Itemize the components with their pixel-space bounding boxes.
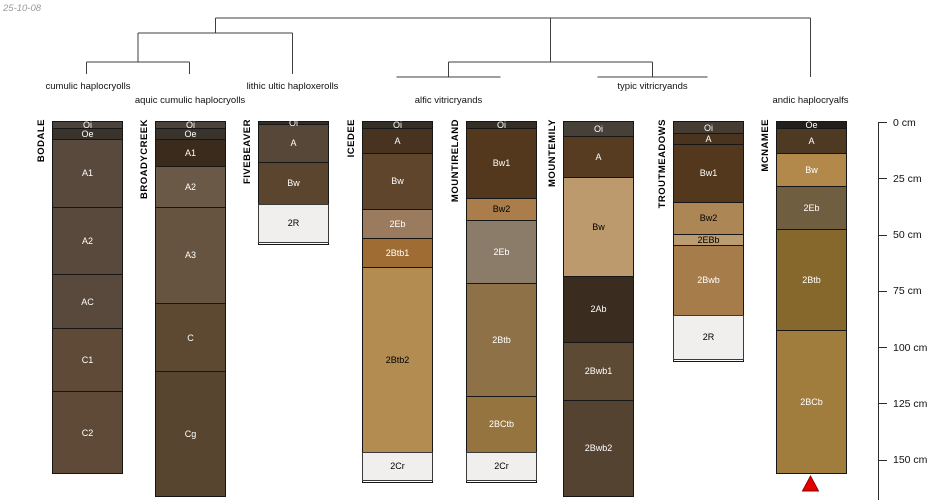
- horizon-bodale-oe: Oe: [53, 129, 122, 140]
- horizon-mcnamee-oe: Oe: [777, 122, 846, 129]
- horizon-broadycreek-a1: A1: [156, 140, 225, 167]
- depth-tick: [879, 347, 887, 348]
- horizon-mountemily-2bwb2: 2Bwb2: [564, 401, 633, 496]
- depth-tick-label: 0 cm: [893, 117, 916, 129]
- horizon-icedee-2cr: 2Cr: [362, 452, 433, 481]
- horizon-troutmeadows-oi: Oi: [674, 122, 743, 134]
- horizon-label: Oi: [497, 121, 506, 129]
- horizon-label: 2R: [703, 333, 715, 341]
- horizon-label: Bw1: [700, 169, 718, 177]
- horizon-mountemily-2bwb1: 2Bwb1: [564, 343, 633, 402]
- profile-column-icedee: OiABw2Eb2Btb12Btb22Cr: [362, 121, 433, 483]
- horizon-icedee-2eb: 2Eb: [363, 210, 432, 239]
- profile-column-broadycreek: OiOeA1A2A3CCg: [155, 121, 226, 497]
- horizon-label: Oi: [186, 121, 195, 129]
- profile-column-bodale: OiOeA1A2ACC1C2: [52, 121, 123, 474]
- horizon-mountemily-2ab: 2Ab: [564, 277, 633, 342]
- horizon-label: Oi: [594, 125, 603, 133]
- horizon-mountemily-bw: Bw: [564, 178, 633, 277]
- group-label: alfic vitricryands: [415, 95, 483, 106]
- horizon-label: A3: [185, 251, 196, 259]
- horizon-label: Bw: [592, 223, 605, 231]
- horizon-label: 2Btb: [492, 336, 511, 344]
- horizon-label: 2Ab: [590, 305, 606, 313]
- horizon-label: 2Eb: [389, 220, 405, 228]
- horizon-label: Oe: [805, 121, 817, 129]
- horizon-bodale-oi: Oi: [53, 122, 122, 129]
- profile-name-fivebeaver: FIVEBEAVER: [242, 119, 253, 184]
- depth-tick-label: 50 cm: [893, 229, 922, 241]
- horizon-broadycreek-a3: A3: [156, 208, 225, 305]
- group-label: cumulic haplocryolls: [45, 81, 130, 92]
- horizon-mountireland-bw2: Bw2: [467, 199, 536, 222]
- horizon-label: A2: [185, 183, 196, 191]
- horizon-label: 2Eb: [803, 204, 819, 212]
- profile-name-troutmeadows: TROUTMEADOWS: [657, 119, 668, 208]
- horizon-label: 2R: [288, 219, 300, 227]
- horizon-mountemily-a: A: [564, 137, 633, 179]
- horizon-label: Oi: [289, 119, 298, 127]
- horizon-label: Oi: [83, 121, 92, 129]
- horizon-label: Oi: [393, 121, 402, 129]
- depth-tick-label: 150 cm: [893, 454, 927, 466]
- profile-name-icedee: ICEDEE: [346, 119, 357, 157]
- horizon-label: 2Btb1: [386, 249, 410, 257]
- horizon-label: A1: [82, 169, 93, 177]
- horizon-broadycreek-c: C: [156, 304, 225, 372]
- horizon-label: 2Bwb1: [585, 367, 613, 375]
- horizon-label: 2BCb: [800, 398, 823, 406]
- horizon-label: Oi: [704, 124, 713, 132]
- horizon-bodale-a2: A2: [53, 208, 122, 276]
- horizon-troutmeadows-a: A: [674, 134, 743, 144]
- horizon-label: 2Eb: [493, 248, 509, 256]
- horizon-label: A: [705, 135, 711, 143]
- horizon-mcnamee-bw: Bw: [777, 154, 846, 188]
- profile-name-mcnamee: MCNAMEE: [760, 119, 771, 172]
- horizon-label: 2Btb: [802, 276, 821, 284]
- horizon-label: A: [290, 139, 296, 147]
- horizon-label: Bw: [805, 166, 818, 174]
- horizon-label: A2: [82, 237, 93, 245]
- group-label: lithic ultic haploxerolls: [247, 81, 339, 92]
- group-label: aquic cumulic haplocryolls: [135, 95, 245, 106]
- profile-name-bodale: BODALE: [36, 119, 47, 162]
- horizon-bodale-c1: C1: [53, 329, 122, 392]
- horizon-fivebeaver-2r: 2R: [258, 204, 329, 242]
- horizon-label: 2EBb: [697, 236, 719, 244]
- horizon-label: Bw1: [493, 159, 511, 167]
- horizon-label: 2Cr: [390, 462, 405, 470]
- profile-column-mountireland: OiBw1Bw22Eb2Btb2BCtb2Cr: [466, 121, 537, 483]
- depth-tick: [879, 460, 887, 461]
- horizon-icedee-bw: Bw: [363, 154, 432, 210]
- horizon-broadycreek-oe: Oe: [156, 129, 225, 140]
- depth-tick: [879, 235, 887, 236]
- horizon-label: 2BCtb: [489, 420, 514, 428]
- profile-column-troutmeadows: OiABw1Bw22EBb2Bwb2R: [673, 121, 744, 362]
- horizon-label: Bw2: [700, 214, 718, 222]
- horizon-label: A: [595, 153, 601, 161]
- horizon-fivebeaver-bw: Bw: [259, 163, 328, 206]
- horizon-mountemily-oi: Oi: [564, 122, 633, 137]
- horizon-label: A1: [185, 149, 196, 157]
- horizon-icedee-a: A: [363, 129, 432, 154]
- profile-column-mountemily: OiABw2Ab2Bwb12Bwb2: [563, 121, 634, 497]
- group-label: andic haplocryalfs: [772, 95, 848, 106]
- depth-tick: [879, 291, 887, 292]
- horizon-troutmeadows-bw1: Bw1: [674, 145, 743, 204]
- profile-name-broadycreek: BROADYCREEK: [139, 119, 150, 199]
- horizon-mcnamee-2eb: 2Eb: [777, 187, 846, 230]
- horizon-troutmeadows-2r: 2R: [673, 315, 744, 360]
- horizon-mountireland-bw1: Bw1: [467, 129, 536, 199]
- depth-tick: [879, 122, 887, 123]
- horizon-label: A: [394, 137, 400, 145]
- horizon-label: Oe: [81, 130, 93, 138]
- horizon-bodale-a1: A1: [53, 140, 122, 208]
- horizon-mcnamee-a: A: [777, 129, 846, 154]
- horizon-troutmeadows-2ebb: 2EBb: [674, 235, 743, 246]
- horizon-mountireland-oi: Oi: [467, 122, 536, 129]
- horizon-mcnamee-2bcb: 2BCb: [777, 331, 846, 473]
- horizon-label: Bw: [287, 179, 300, 187]
- horizon-troutmeadows-bw2: Bw2: [674, 203, 743, 235]
- soil-profile-dendrogram-chart: 25-10-08 cumulic haplocryollsaquic cumul…: [0, 0, 950, 500]
- profile-name-mountemily: MOUNTEMILY: [547, 119, 558, 187]
- horizon-label: Oe: [184, 130, 196, 138]
- horizon-mountireland-2btb: 2Btb: [467, 284, 536, 397]
- horizon-label: A: [808, 137, 814, 145]
- depth-tick-label: 25 cm: [893, 173, 922, 185]
- horizon-icedee-2btb2: 2Btb2: [363, 268, 432, 453]
- depth-tick: [879, 403, 887, 404]
- horizon-label: 2Bwb2: [585, 444, 613, 452]
- horizon-broadycreek-cg: Cg: [156, 372, 225, 496]
- horizon-fivebeaver-a: A: [259, 125, 328, 162]
- horizon-label: 2Btb2: [386, 356, 410, 364]
- depth-tick-label: 75 cm: [893, 285, 922, 297]
- horizon-label: AC: [81, 298, 94, 306]
- horizon-mountireland-2eb: 2Eb: [467, 221, 536, 284]
- red-triangle-marker: [803, 476, 819, 491]
- horizon-mountireland-2bctb: 2BCtb: [467, 397, 536, 453]
- horizon-broadycreek-oi: Oi: [156, 122, 225, 129]
- group-label: typic vitricryands: [617, 81, 687, 92]
- horizon-icedee-oi: Oi: [363, 122, 432, 129]
- horizon-label: C1: [82, 356, 94, 364]
- horizon-label: 2Bwb: [697, 276, 720, 284]
- depth-tick-label: 100 cm: [893, 342, 927, 354]
- depth-tick-label: 125 cm: [893, 398, 927, 410]
- horizon-label: 2Cr: [494, 462, 509, 470]
- horizon-broadycreek-a2: A2: [156, 167, 225, 208]
- profile-column-fivebeaver: OiABw2R: [258, 121, 329, 245]
- horizon-label: C: [187, 334, 194, 342]
- horizon-bodale-c2: C2: [53, 392, 122, 473]
- horizon-label: C2: [82, 429, 94, 437]
- horizon-label: Bw2: [493, 205, 511, 213]
- horizon-mcnamee-2btb: 2Btb: [777, 230, 846, 331]
- profile-column-mcnamee: OeABw2Eb2Btb2BCb: [776, 121, 847, 474]
- horizon-icedee-2btb1: 2Btb1: [363, 239, 432, 268]
- horizon-troutmeadows-2bwb: 2Bwb: [674, 246, 743, 316]
- depth-tick: [879, 178, 887, 179]
- profile-name-mountireland: MOUNTIRELAND: [450, 119, 461, 202]
- horizon-mountireland-2cr: 2Cr: [466, 452, 537, 481]
- horizon-label: Bw: [391, 177, 404, 185]
- horizon-bodale-ac: AC: [53, 275, 122, 329]
- horizon-label: Cg: [185, 430, 197, 438]
